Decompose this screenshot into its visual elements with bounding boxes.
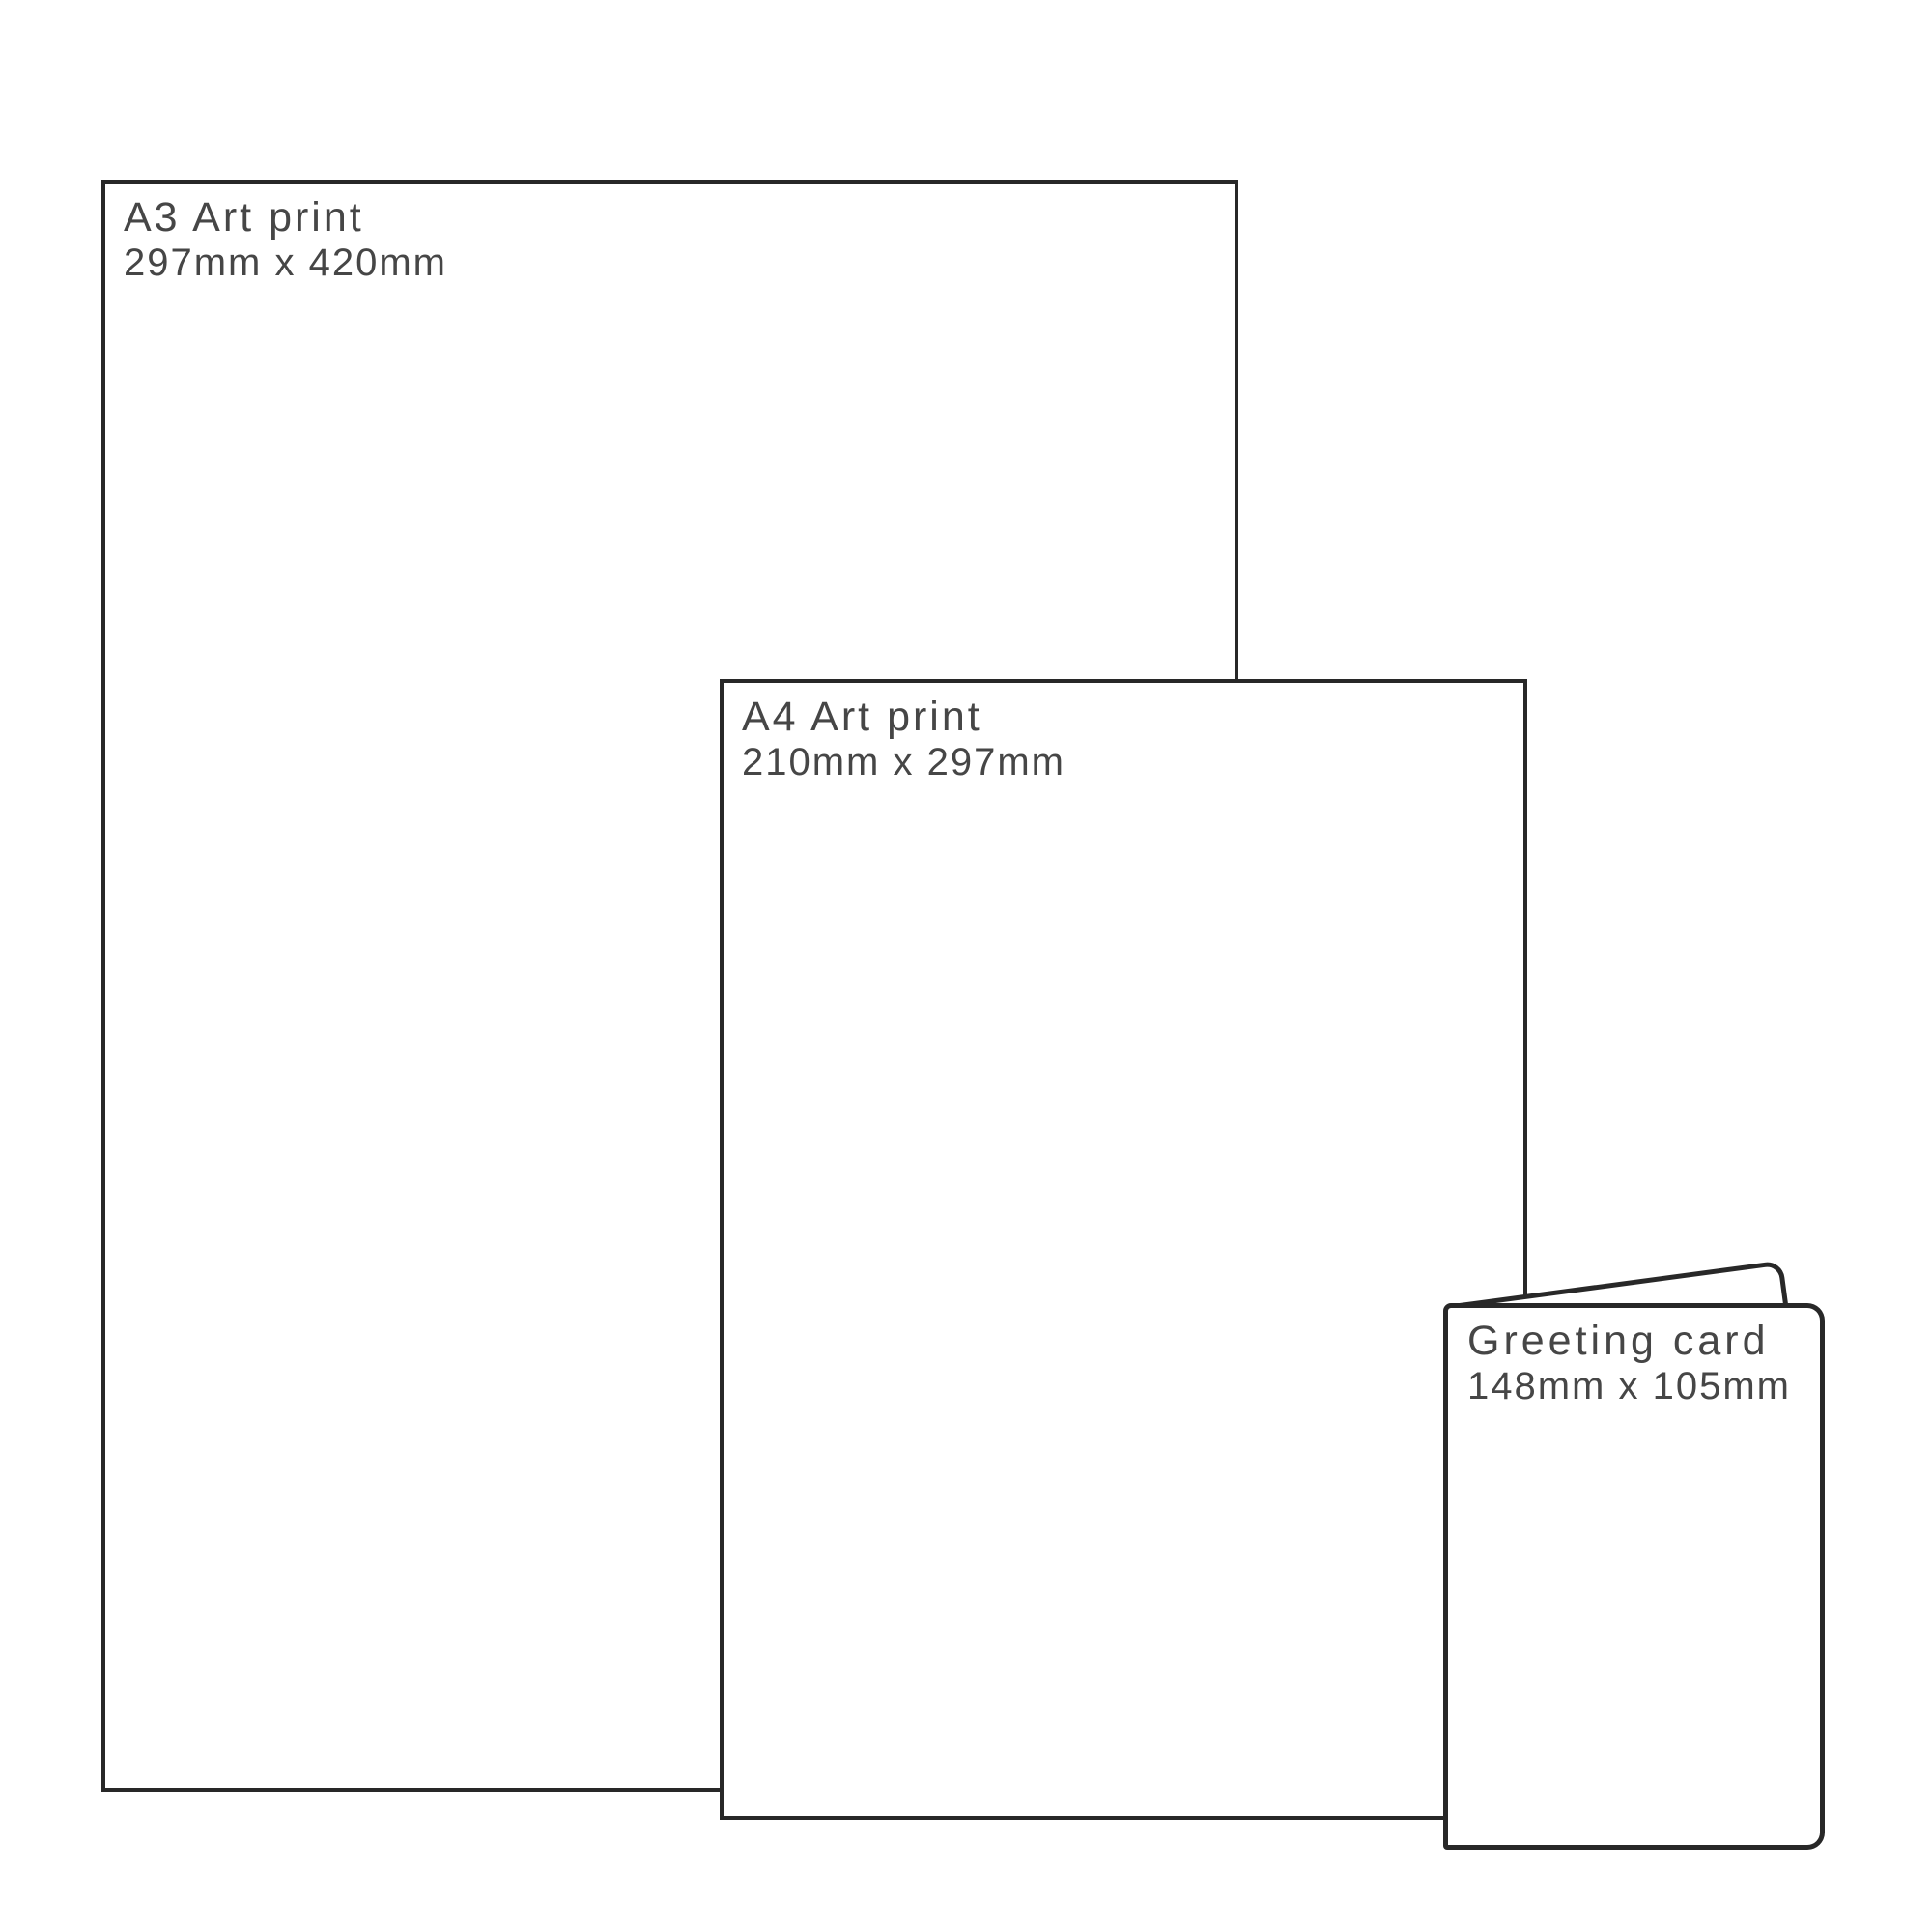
greeting-card-label: Greeting card 148mm x 105mm [1448,1308,1791,1407]
a4-print-dimensions: 210mm x 297mm [742,741,1065,783]
a4-print-title: A4 Art print [742,693,1065,741]
size-comparison-diagram: A3 Art print 297mm x 420mm A4 Art print … [0,0,1932,1932]
a3-print-label: A3 Art print 297mm x 420mm [105,184,447,284]
a3-print-title: A3 Art print [124,193,447,241]
greeting-card-dimensions: 148mm x 105mm [1467,1365,1791,1407]
a4-print-label: A4 Art print 210mm x 297mm [724,683,1065,783]
greeting-card-title: Greeting card [1467,1317,1791,1365]
a3-print-dimensions: 297mm x 420mm [124,241,447,284]
a4-print-outline: A4 Art print 210mm x 297mm [720,679,1527,1820]
greeting-card-outline: Greeting card 148mm x 105mm [1443,1303,1825,1850]
